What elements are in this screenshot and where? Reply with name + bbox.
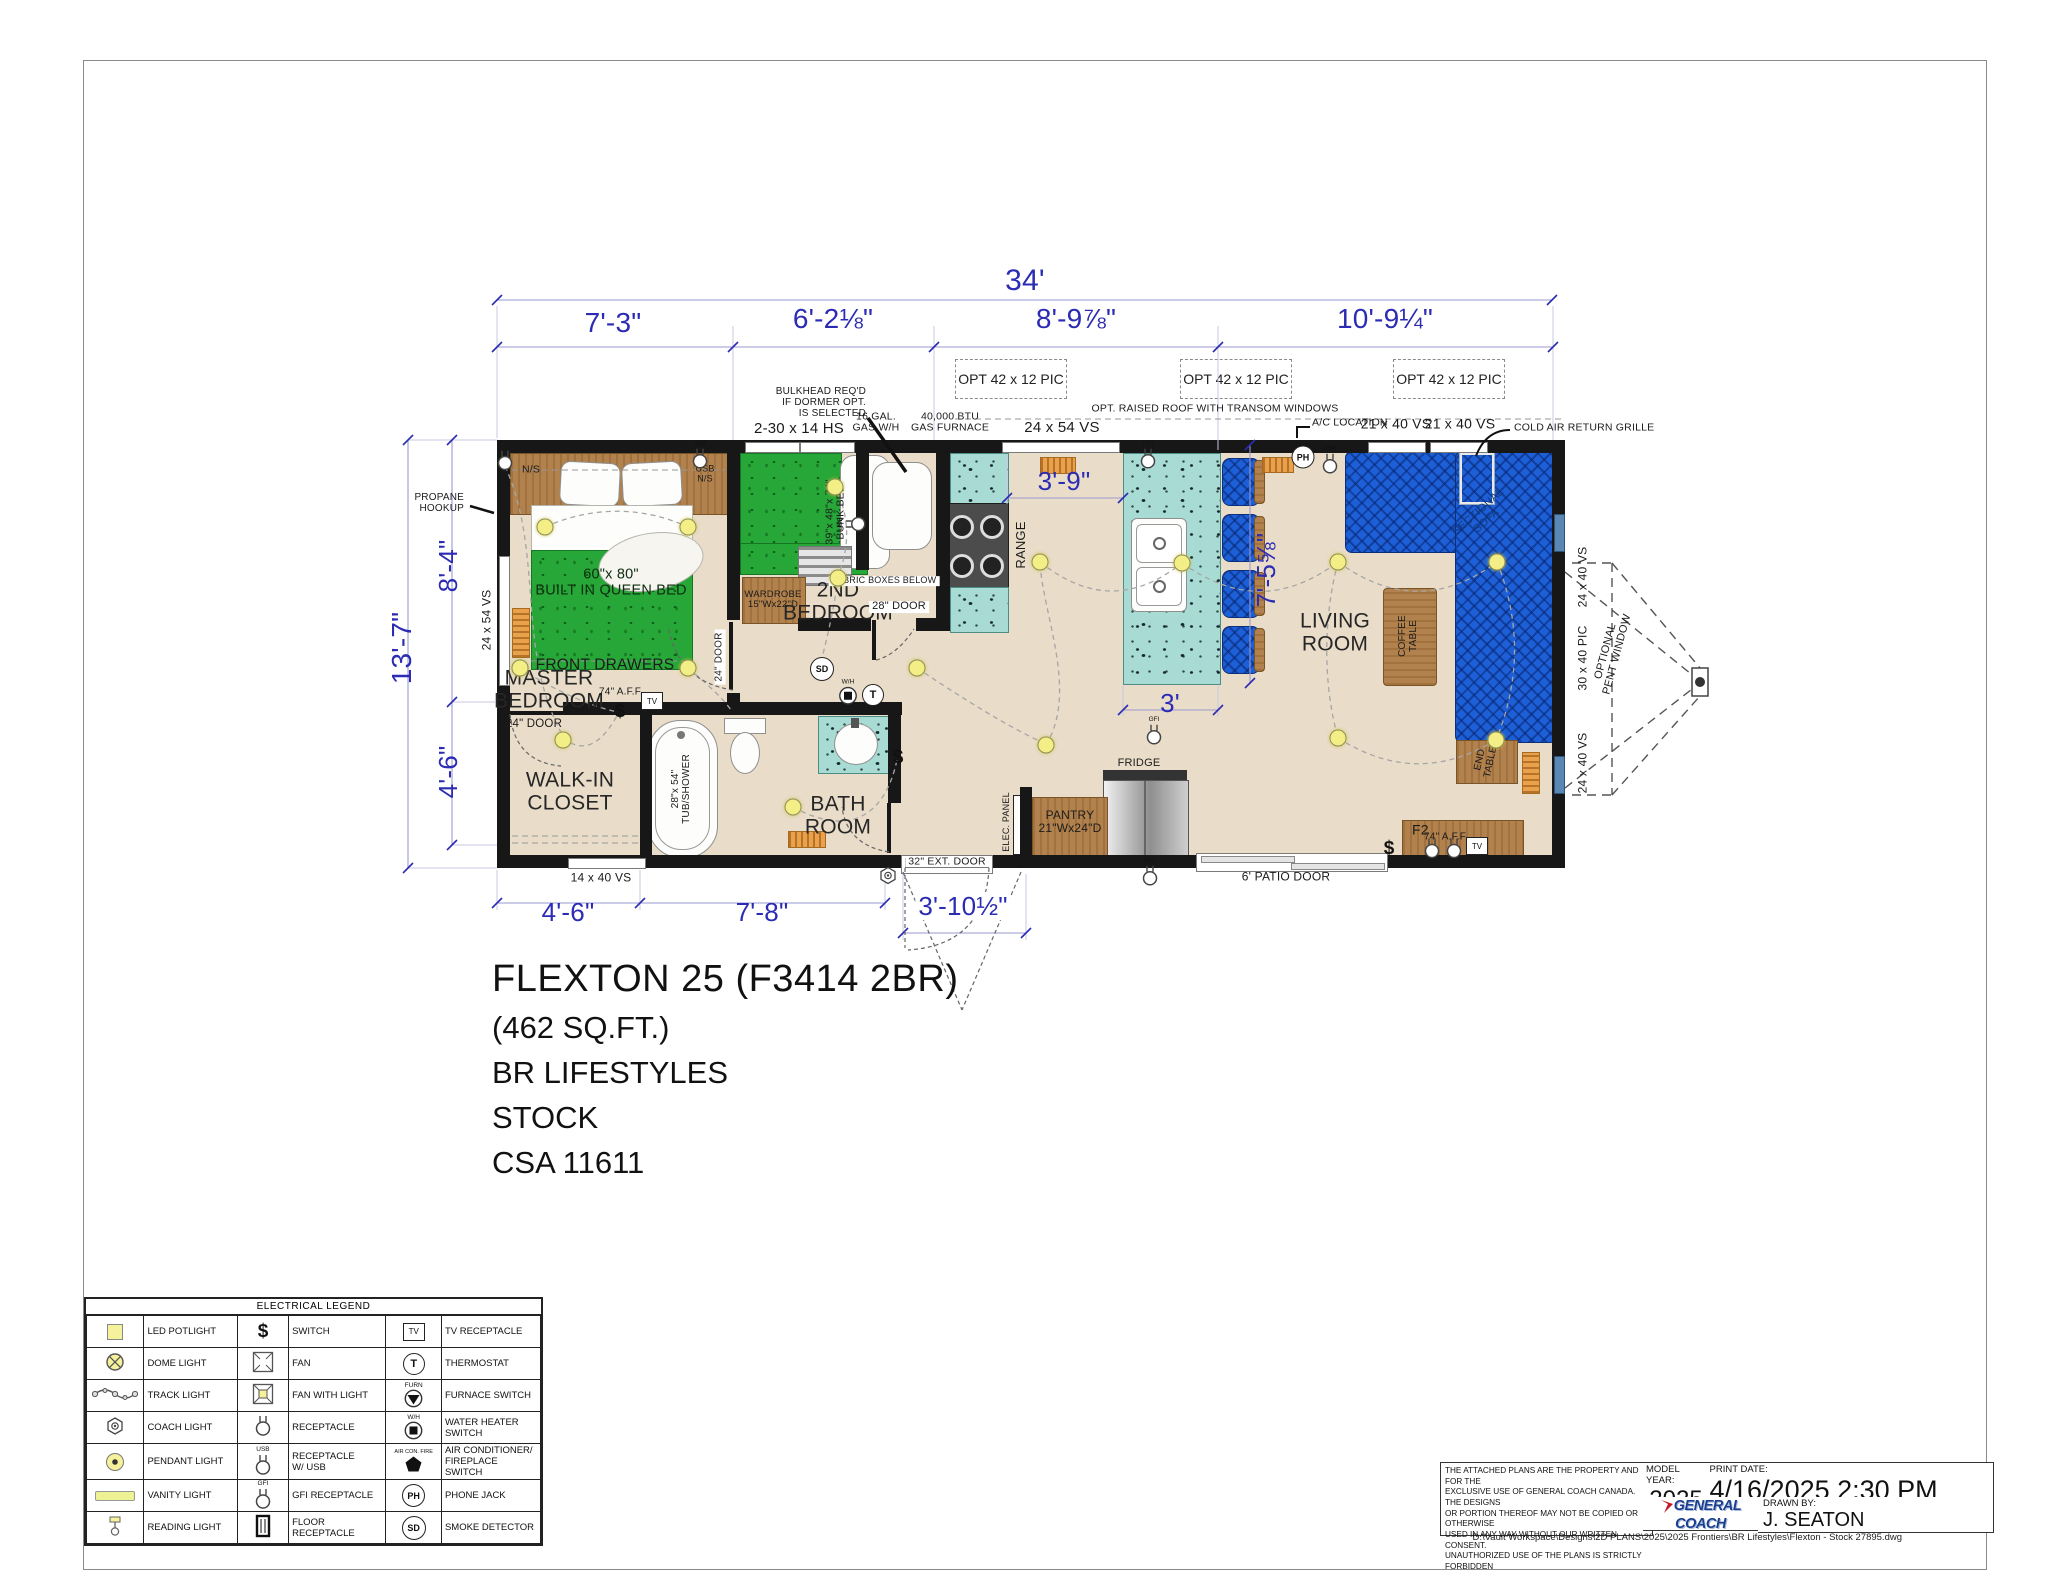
plan-annotation: 21 x 40 VS xyxy=(1425,416,1496,431)
legend-symbol-cell xyxy=(87,1480,144,1512)
plan-annotation: 2-30 x 14 HS xyxy=(754,421,844,437)
plan-annotation: 8'-9⅞" xyxy=(1036,304,1116,334)
plan-symbol-tv-receptacle: TV xyxy=(1466,837,1488,855)
plan-annotation: 7'-8" xyxy=(736,898,789,926)
receptacle-usb-icon: USB xyxy=(838,515,867,533)
plan-annotation: 28"x 54" TUB/SHOWER xyxy=(671,754,693,824)
led-potlight-icon xyxy=(107,1324,123,1340)
ceiling-light-icon xyxy=(537,519,554,536)
ceiling-light-icon xyxy=(827,479,844,496)
legend-label-cell: COACH LIGHT xyxy=(144,1412,237,1444)
window-14x40-bath xyxy=(568,858,646,869)
fan-with-light-icon xyxy=(252,1383,274,1405)
phone-jack-icon: PH xyxy=(1292,446,1315,469)
legend-label-cell: TV RECEPTACLE xyxy=(441,1316,540,1348)
plan-annotation: 3'-9" xyxy=(1038,467,1091,495)
smoke-detector-icon: SD xyxy=(810,657,834,681)
plan-annotation: BULKHEAD REQ'D IF DORMER OPT. IS SELECTE… xyxy=(776,387,866,419)
plan-annotation: 24 x 40 VS xyxy=(1577,547,1590,608)
ceiling-light-icon xyxy=(680,660,697,677)
burner xyxy=(950,554,974,578)
plan-annotation: FRIDGE xyxy=(1118,758,1161,770)
switch-icon: $ xyxy=(615,701,626,722)
plan-annotation: 3' xyxy=(1160,689,1180,717)
switch-icon: $ xyxy=(893,747,904,768)
ac-fireplace-switch-icon: AIR CON. FIRE xyxy=(389,1450,438,1474)
receptacle-icon xyxy=(1139,447,1157,469)
receptacle-icon xyxy=(1141,864,1159,886)
plan-symbol-receptacle xyxy=(1445,838,1463,865)
receptacle-icon xyxy=(254,1454,272,1476)
receptacle-icon xyxy=(254,1488,272,1510)
thermostat-icon: T xyxy=(403,1353,425,1375)
plan-annotation: 40,000 BTU GAS FURNACE xyxy=(911,412,989,435)
plan-annotation: 24 x 54 VS xyxy=(481,590,494,651)
plan-annotation: 4'-6" xyxy=(542,898,595,926)
plan-annotation: RANGE xyxy=(1014,521,1028,568)
legend-label-cell: PENDANT LIGHT xyxy=(144,1444,237,1480)
plan-symbol-receptacle-usb: USB xyxy=(691,441,709,470)
plan-annotation: 13'-7" xyxy=(387,612,417,685)
plan-symbol-coach-light xyxy=(878,866,898,891)
receptacle-icon xyxy=(1145,723,1163,745)
legend-symbol-cell xyxy=(237,1348,288,1380)
plan-symbol-gfi-receptacle: GFI xyxy=(1141,858,1159,887)
tv-receptacle-icon: TV xyxy=(641,692,663,710)
legend-label-cell: FAN xyxy=(289,1348,386,1380)
plan-annotation: 60"x 80" BUILT IN QUEEN BED xyxy=(535,567,686,598)
legend-row: LED POTLIGHT$SWITCHTVTV RECEPTACLE xyxy=(87,1316,541,1348)
plan-annotation: 34' xyxy=(1005,265,1045,297)
ceiling-light-icon xyxy=(1488,732,1505,749)
wall-exterior-bottom xyxy=(497,855,1565,868)
drawn-by-cell: DRAWN BY: J. SEATON xyxy=(1758,1497,1994,1533)
plan-annotation: 30 x 40 PIC xyxy=(1577,626,1590,691)
legend-symbol-cell: SD xyxy=(386,1512,442,1544)
legend-label-cell: RECEPTACLE xyxy=(289,1412,386,1444)
disclaimer-box: THE ATTACHED PLANS ARE THE PROPERTY AND … xyxy=(1440,1462,1653,1536)
plan-sqft: (462 SQ.FT.) xyxy=(492,1010,958,1046)
legend-label-cell: DOME LIGHT xyxy=(144,1348,237,1380)
opt-pic-window-box: OPT 42 x 12 PIC xyxy=(1180,359,1292,399)
wall-closet-bath xyxy=(640,715,652,868)
legend-symbol-cell: W/H xyxy=(386,1412,442,1444)
plan-symbol-receptacle-usb: USB xyxy=(838,515,867,533)
legend-row: DOME LIGHTFANTTHERMOSTAT xyxy=(87,1348,541,1380)
floor-plan-sheet: OPT 42 x 12 PICOPT 42 x 12 PICOPT 42 x 1… xyxy=(0,0,2048,1583)
gfi-receptacle-icon: GFI xyxy=(241,1481,285,1510)
plan-symbol-smoke-detector: SD xyxy=(810,657,834,681)
plan-stock: STOCK xyxy=(492,1100,958,1136)
ceiling-light-icon xyxy=(1489,554,1506,571)
wall-closet-kitchen xyxy=(936,440,950,631)
receptacle-icon xyxy=(1445,838,1463,860)
reading-light-icon xyxy=(106,1515,124,1537)
window-24x54-kitchen xyxy=(1002,442,1120,453)
receptacle-usb-icon: USB xyxy=(241,1447,285,1476)
plan-annotation: 24 x 54 VS xyxy=(1024,420,1099,436)
ceiling-light-icon xyxy=(1330,554,1347,571)
door-leaf-bath xyxy=(887,803,891,853)
plan-annotation: 21 x 40 VS xyxy=(1361,416,1432,431)
plan-symbol-wh-switch: W/H xyxy=(839,679,858,705)
water-heater-switch-icon: W/H xyxy=(839,679,858,705)
range xyxy=(941,503,1009,589)
legend-label-cell: SWITCH xyxy=(289,1316,386,1348)
legend-label-cell: VANITY LIGHT xyxy=(144,1480,237,1512)
plan-symbol-switch: $ xyxy=(893,747,904,769)
plan-symbol-thermostat: T xyxy=(862,684,884,706)
plan-symbol-receptacle xyxy=(496,450,514,477)
pent-window-lower xyxy=(1554,756,1565,794)
burner xyxy=(980,515,1004,539)
ceiling-light-icon xyxy=(1330,730,1347,747)
legend-symbol-cell: FURN xyxy=(386,1380,442,1412)
toilet-bowl xyxy=(730,732,760,774)
fan-icon xyxy=(252,1351,274,1373)
plan-annotation: 14 x 40 VS xyxy=(568,872,635,885)
legend-label-cell: FURNACE SWITCH xyxy=(441,1380,540,1412)
legend-label-cell: FLOOR RECEPTACLE xyxy=(289,1512,386,1544)
plan-csa: CSA 11611 xyxy=(492,1145,958,1181)
plan-annotation: N/S xyxy=(522,464,540,475)
receptacle-icon xyxy=(1423,838,1441,860)
switch-icon: $ xyxy=(1384,838,1395,859)
tv-receptacle-icon: TV xyxy=(403,1323,425,1341)
legend-symbol-cell: $ xyxy=(237,1316,288,1348)
coach-light-icon xyxy=(105,1416,125,1436)
phone-jack-icon: PH xyxy=(402,1484,425,1507)
receptacle-icon xyxy=(691,447,709,469)
heat-register xyxy=(1262,457,1294,473)
plan-annotation: LIVING ROOM xyxy=(1300,610,1370,655)
legend-label-cell: RECEPTACLE W/ USB xyxy=(289,1444,386,1480)
bath-sink xyxy=(834,723,878,765)
model-year-cell: MODEL YEAR: 2025 xyxy=(1643,1462,1710,1501)
plan-annotation: 24 x 40 VS xyxy=(1577,733,1590,794)
legend-symbol-cell: AIR CON. FIRE xyxy=(386,1444,442,1480)
plan-annotation: WALK-IN CLOSET xyxy=(526,769,614,814)
model-year-label: MODEL YEAR: xyxy=(1646,1464,1706,1486)
receptacle-usb-icon: USB xyxy=(1321,446,1339,475)
pillow xyxy=(621,460,683,507)
drawn-by-label: DRAWN BY: xyxy=(1763,1498,1988,1509)
plan-annotation: 6' PATIO DOOR xyxy=(1242,871,1330,884)
legend-symbol-cell: USB xyxy=(237,1444,288,1480)
plan-annotation: OPT. RAISED ROOF WITH TRANSOM WINDOWS xyxy=(1092,403,1339,414)
window-21x40-b xyxy=(1430,442,1488,453)
plan-annotation: MASTER BEDROOM xyxy=(494,667,604,712)
pendant-light-icon xyxy=(106,1453,124,1471)
heat-register xyxy=(512,608,530,658)
plan-annotation: 3'-10½" xyxy=(915,892,1010,920)
file-path: D:\Vault Workspace\Designs\2D PLANS\2025… xyxy=(1437,1532,1902,1543)
door-leaf-master xyxy=(729,622,733,690)
legend-table: LED POTLIGHT$SWITCHTVTV RECEPTACLEDOME L… xyxy=(86,1315,541,1544)
floor-receptacle-icon xyxy=(254,1514,272,1538)
plan-annotation: 32" EXT. DOOR xyxy=(905,856,989,867)
pillow xyxy=(559,460,621,507)
legend-label-cell: READING LIGHT xyxy=(144,1512,237,1544)
print-date-cell: PRINT DATE: 4/16/2025 2:30 PM xyxy=(1705,1462,1994,1501)
plan-annotation: COFFEE TABLE xyxy=(1398,615,1420,657)
plan-annotation: COLD AIR RETURN GRILLE xyxy=(1514,422,1654,433)
plan-symbol-receptacle-usb: USB xyxy=(1321,446,1339,475)
ceiling-light-icon xyxy=(555,732,572,749)
burner xyxy=(980,554,1004,578)
plan-symbol-switch: $ xyxy=(615,701,626,723)
furnace-switch-icon: FURN xyxy=(389,1383,438,1409)
fridge xyxy=(1103,780,1189,862)
legend-row: VANITY LIGHTGFIGFI RECEPTACLEPHPHONE JAC… xyxy=(87,1480,541,1512)
legend-symbol-cell xyxy=(87,1444,144,1480)
wall-exterior-right xyxy=(1552,440,1565,868)
heat-register xyxy=(1522,752,1540,794)
thermostat-icon: T xyxy=(862,684,884,706)
legend-symbol-cell: TV xyxy=(386,1316,442,1348)
fridge-top xyxy=(1103,770,1187,780)
receptacle-icon xyxy=(254,1415,272,1437)
track-light-icon xyxy=(92,1386,138,1402)
vanity-light-icon xyxy=(95,1491,135,1501)
legend-label-cell: SMOKE DETECTOR xyxy=(441,1512,540,1544)
legend-symbol-cell xyxy=(87,1512,144,1544)
smoke-detector-icon: SD xyxy=(402,1516,426,1540)
plan-annotation: 7'-5⅝" xyxy=(1252,533,1280,608)
plan-symbol-gfi-receptacle: GFI xyxy=(1145,717,1163,746)
plan-series: BR LIFESTYLES xyxy=(492,1055,958,1091)
print-date-label: PRINT DATE: xyxy=(1710,1464,1988,1475)
plan-symbol-tv-receptacle: TV xyxy=(641,692,663,710)
opt-pic-window-box: OPT 42 x 12 PIC xyxy=(955,359,1067,399)
plan-annotation: 8'-4" xyxy=(434,540,462,593)
plan-annotation: BATH ROOM xyxy=(805,793,871,838)
legend-symbol-cell: GFI xyxy=(237,1480,288,1512)
plan-annotation: 24" DOOR xyxy=(715,629,726,684)
plan-annotation: 28" DOOR xyxy=(869,601,929,613)
ceiling-light-icon xyxy=(1032,554,1049,571)
receptacle-icon xyxy=(496,450,514,472)
plan-annotation: 24" DOOR xyxy=(506,718,562,730)
dome-light-icon xyxy=(104,1351,126,1373)
receptacle-usb-icon: USB xyxy=(691,441,709,470)
door-leaf-utility xyxy=(872,620,876,660)
legend-row: TRACK LIGHTFAN WITH LIGHTFURNFURNACE SWI… xyxy=(87,1380,541,1412)
switch-icon: $ xyxy=(258,1321,269,1342)
ceiling-light-icon xyxy=(1174,555,1191,572)
plan-annotation: 7'-3" xyxy=(585,308,642,338)
wall-pantry xyxy=(1020,787,1032,855)
legend-symbol-cell xyxy=(237,1512,288,1544)
legend-symbol-cell xyxy=(237,1412,288,1444)
plan-annotation: PROPANE HOOKUP xyxy=(414,493,464,515)
legend-symbol-cell xyxy=(87,1348,144,1380)
wall-master-2ndbr xyxy=(727,440,740,620)
plan-symbol-phone-jack: PH xyxy=(1292,446,1315,469)
legend-symbol-cell: PH xyxy=(386,1480,442,1512)
ceiling-light-icon xyxy=(512,660,529,677)
logo-cell: GENERAL COACH C A N A D A xyxy=(1643,1497,1759,1531)
receptacle-icon xyxy=(844,515,866,533)
legend-symbol-cell: T xyxy=(386,1348,442,1380)
legend-label-cell: PHONE JACK xyxy=(441,1480,540,1512)
ceiling-light-icon xyxy=(909,660,926,677)
kitchen-counter-top xyxy=(950,453,1009,505)
legend-symbol-cell xyxy=(87,1316,144,1348)
plan-symbol-receptacle xyxy=(1423,838,1441,865)
water-heater-tank xyxy=(872,462,932,550)
legend-title: ELECTRICAL LEGEND xyxy=(86,1299,541,1315)
receptacle-icon xyxy=(1321,452,1339,474)
legend-symbol-cell xyxy=(237,1380,288,1412)
opt-pic-window-box: OPT 42 x 12 PIC xyxy=(1393,359,1505,399)
plan-title: FLEXTON 25 (F3414 2BR) xyxy=(492,958,958,1001)
ceiling-light-icon xyxy=(785,799,802,816)
legend-label-cell: AIR CONDITIONER/ FIREPLACE SWITCH xyxy=(441,1444,540,1480)
ceiling-light-icon xyxy=(680,519,697,536)
stool-back xyxy=(1254,628,1265,672)
legend-label-cell: LED POTLIGHT xyxy=(144,1316,237,1348)
wall-2ndbr-closet xyxy=(856,440,869,570)
electrical-legend: ELECTRICAL LEGEND LED POTLIGHT$SWITCHTVT… xyxy=(84,1297,543,1546)
burner xyxy=(950,515,974,539)
legend-label-cell: WATER HEATER SWITCH xyxy=(441,1412,540,1444)
legend-label-cell: THERMOSTAT xyxy=(441,1348,540,1380)
ceiling-light-icon xyxy=(1038,737,1055,754)
drawn-by-value: J. SEATON xyxy=(1763,1509,1988,1532)
plan-annotation: 74" A.F.F. xyxy=(599,688,643,699)
window-21x40-a xyxy=(1368,442,1426,453)
gfi-receptacle-icon: GFI xyxy=(1145,717,1163,746)
legend-label-cell: FAN WITH LIGHT xyxy=(289,1380,386,1412)
water-heater-switch-icon: W/H xyxy=(389,1415,438,1441)
plan-annotation: 6'-2⅛" xyxy=(793,304,873,334)
gfi-receptacle-icon: GFI xyxy=(1139,441,1157,470)
plan-annotation: ELEC. PANEL xyxy=(1002,792,1012,852)
plan-symbol-gfi-receptacle: GFI xyxy=(1139,441,1157,470)
kitchen-counter-bottom xyxy=(950,587,1009,633)
ceiling-light-icon xyxy=(830,570,847,587)
coach-light-icon xyxy=(878,866,898,886)
plan-annotation: PANTRY 21"Wx24"D xyxy=(1038,809,1101,835)
window-hs-2ndbr xyxy=(745,442,855,453)
plan-annotation: 4'-6" xyxy=(434,746,462,799)
legend-row: PENDANT LIGHTUSBRECEPTACLE W/ USBAIR CON… xyxy=(87,1444,541,1480)
pent-window-upper xyxy=(1554,514,1565,552)
tv-receptacle-icon: TV xyxy=(1466,837,1488,855)
logo-text: GENERAL COACH xyxy=(1674,1498,1741,1531)
gfi-receptacle-icon: GFI xyxy=(1141,858,1159,887)
plan-title-block: FLEXTON 25 (F3414 2BR) (462 SQ.FT.) BR L… xyxy=(492,958,958,1181)
legend-symbol-cell xyxy=(87,1380,144,1412)
legend-row: READING LIGHTFLOOR RECEPTACLESDSMOKE DET… xyxy=(87,1512,541,1544)
legend-label-cell: TRACK LIGHT xyxy=(144,1380,237,1412)
legend-symbol-cell xyxy=(87,1412,144,1444)
plan-annotation: 10'-9¼" xyxy=(1337,304,1433,334)
wall-2ndbr-bottom-stub xyxy=(916,618,938,631)
plan-symbol-switch: $ xyxy=(1384,838,1395,860)
legend-label-cell: GFI RECEPTACLE xyxy=(289,1480,386,1512)
logo-swoosh-icon xyxy=(1660,1498,1674,1514)
legend-row: COACH LIGHTRECEPTACLEW/HWATER HEATER SWI… xyxy=(87,1412,541,1444)
bath-faucet xyxy=(851,718,859,728)
